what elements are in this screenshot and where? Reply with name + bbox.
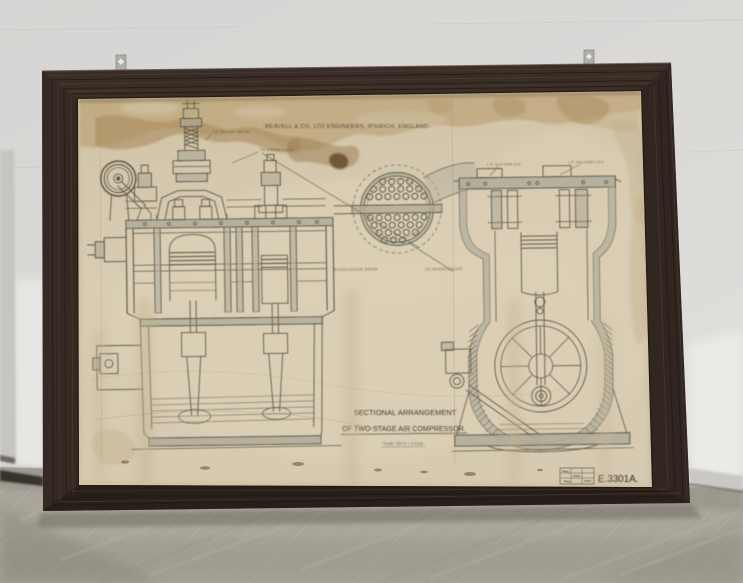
svg-text:INTERCOOLER DRAIN: INTERCOOLER DRAIN [333,267,378,272]
svg-text:TO RELIEF VALVE: TO RELIEF VALVE [213,130,250,134]
svg-text:L.P. SUCTION VLV.: L.P. SUCTION VLV. [487,162,522,166]
svg-text:L.P. DELIVERY VLV.: L.P. DELIVERY VLV. [568,160,604,165]
svg-text:SECTIONAL ARRANGEMENT: SECTIONAL ARRANGEMENT [354,408,457,417]
svg-text:TO INTERCOOLER: TO INTERCOOLER [425,267,463,272]
svg-text:OF TWO-STAGE AIR COMPRESSOR.: OF TWO-STAGE AIR COMPRESSOR. [342,426,466,433]
svg-text:TO DRAIN COCK: TO DRAIN COCK [260,148,294,152]
svg-text:-BEAVELL & CO. LTD ENGINEERS,: -BEAVELL & CO. LTD ENGINEERS, IPSWICH, E… [263,124,431,130]
svg-text:Scale: 3/4 in = 1 Foot: Scale: 3/4 in = 1 Foot [383,441,424,446]
